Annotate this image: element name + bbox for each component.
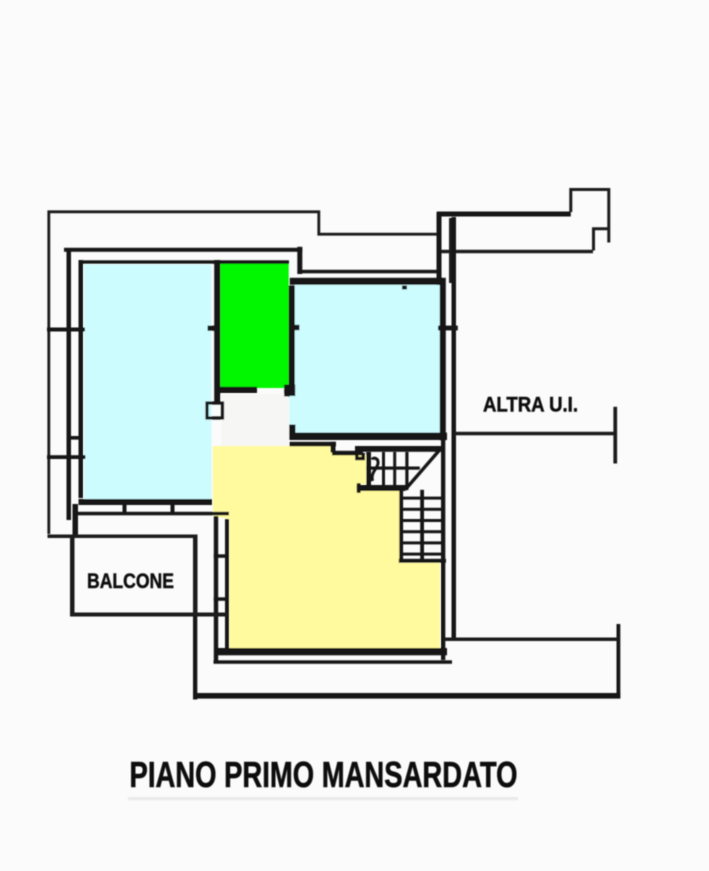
svg-text:PIANO PRIMO MANSARDATO: PIANO PRIMO MANSARDATO (130, 754, 518, 795)
svg-text:BALCONE: BALCONE (87, 569, 174, 593)
svg-text:ALTRA U.I.: ALTRA U.I. (483, 394, 578, 417)
